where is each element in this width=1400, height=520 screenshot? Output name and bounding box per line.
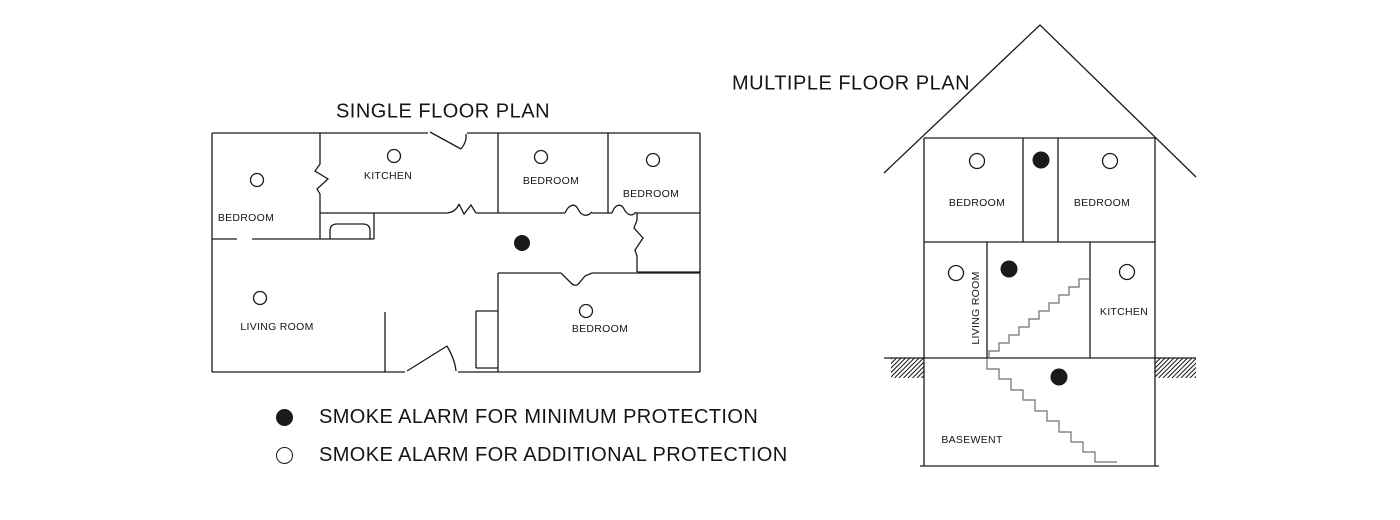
multiple-plan-walls	[884, 25, 1196, 466]
room-label: BEDROOM	[1074, 197, 1130, 209]
room-label: BEDROOM	[572, 323, 628, 335]
room-label: BEDROOM	[949, 197, 1005, 209]
smoke-alarm-diagram: SINGLE FLOOR PLAN MULTIPLE FLOOR PLAN	[0, 0, 1400, 520]
single-plan-walls	[212, 132, 700, 372]
ground-hatch-right	[1136, 358, 1215, 378]
room-label: LIVING ROOM	[240, 321, 313, 333]
basement-outline	[920, 358, 1159, 466]
room-label: BEDROOM	[523, 175, 579, 187]
smoke-alarm-additional-marker	[251, 174, 264, 187]
staircase-first-to-second	[989, 279, 1090, 358]
smoke-alarm-additional-marker	[970, 154, 985, 169]
room-label: KITCHEN	[364, 170, 412, 182]
room-label: BEDROOM	[623, 188, 679, 200]
multiple-plan-alarms	[949, 152, 1135, 386]
smoke-alarm-minimum-marker	[1033, 152, 1050, 169]
smoke-alarm-additional-marker	[647, 154, 660, 167]
smoke-alarm-additional-marker	[535, 151, 548, 164]
smoke-alarm-additional-marker	[388, 150, 401, 163]
filled-circle-icon	[276, 409, 293, 426]
smoke-alarm-additional-marker	[1103, 154, 1118, 169]
single-plan-alarms	[251, 150, 660, 318]
room-label: LIVING ROOM	[970, 271, 982, 344]
smoke-alarm-additional-marker	[1120, 265, 1135, 280]
legend-additional-protection-label: SMOKE ALARM FOR ADDITIONAL PROTECTION	[319, 444, 788, 467]
room-label: KITCHEN	[1100, 306, 1148, 318]
legend-minimum-protection-label: SMOKE ALARM FOR MINIMUM PROTECTION	[319, 406, 758, 429]
room-label: BEDROOM	[218, 212, 274, 224]
single-plan-labels: BEDROOMKITCHENBEDROOMBEDROOMLIVING ROOMB…	[218, 170, 679, 335]
smoke-alarm-additional-marker	[254, 292, 267, 305]
smoke-alarm-minimum-marker	[1001, 261, 1018, 278]
room-label: BASEWENT	[941, 434, 1003, 446]
multiple-plan-labels: BEDROOMBEDROOMLIVING ROOMKITCHENBASEWENT	[941, 197, 1148, 446]
smoke-alarm-additional-marker	[580, 305, 593, 318]
smoke-alarm-minimum-marker	[1051, 369, 1068, 386]
smoke-alarm-additional-marker	[949, 266, 964, 281]
floor-plans-drawing: BEDROOMKITCHENBEDROOMBEDROOMLIVING ROOMB…	[0, 0, 1400, 520]
smoke-alarm-minimum-marker	[514, 235, 530, 251]
open-circle-icon	[276, 447, 293, 464]
ground-hatch-left	[872, 358, 942, 378]
